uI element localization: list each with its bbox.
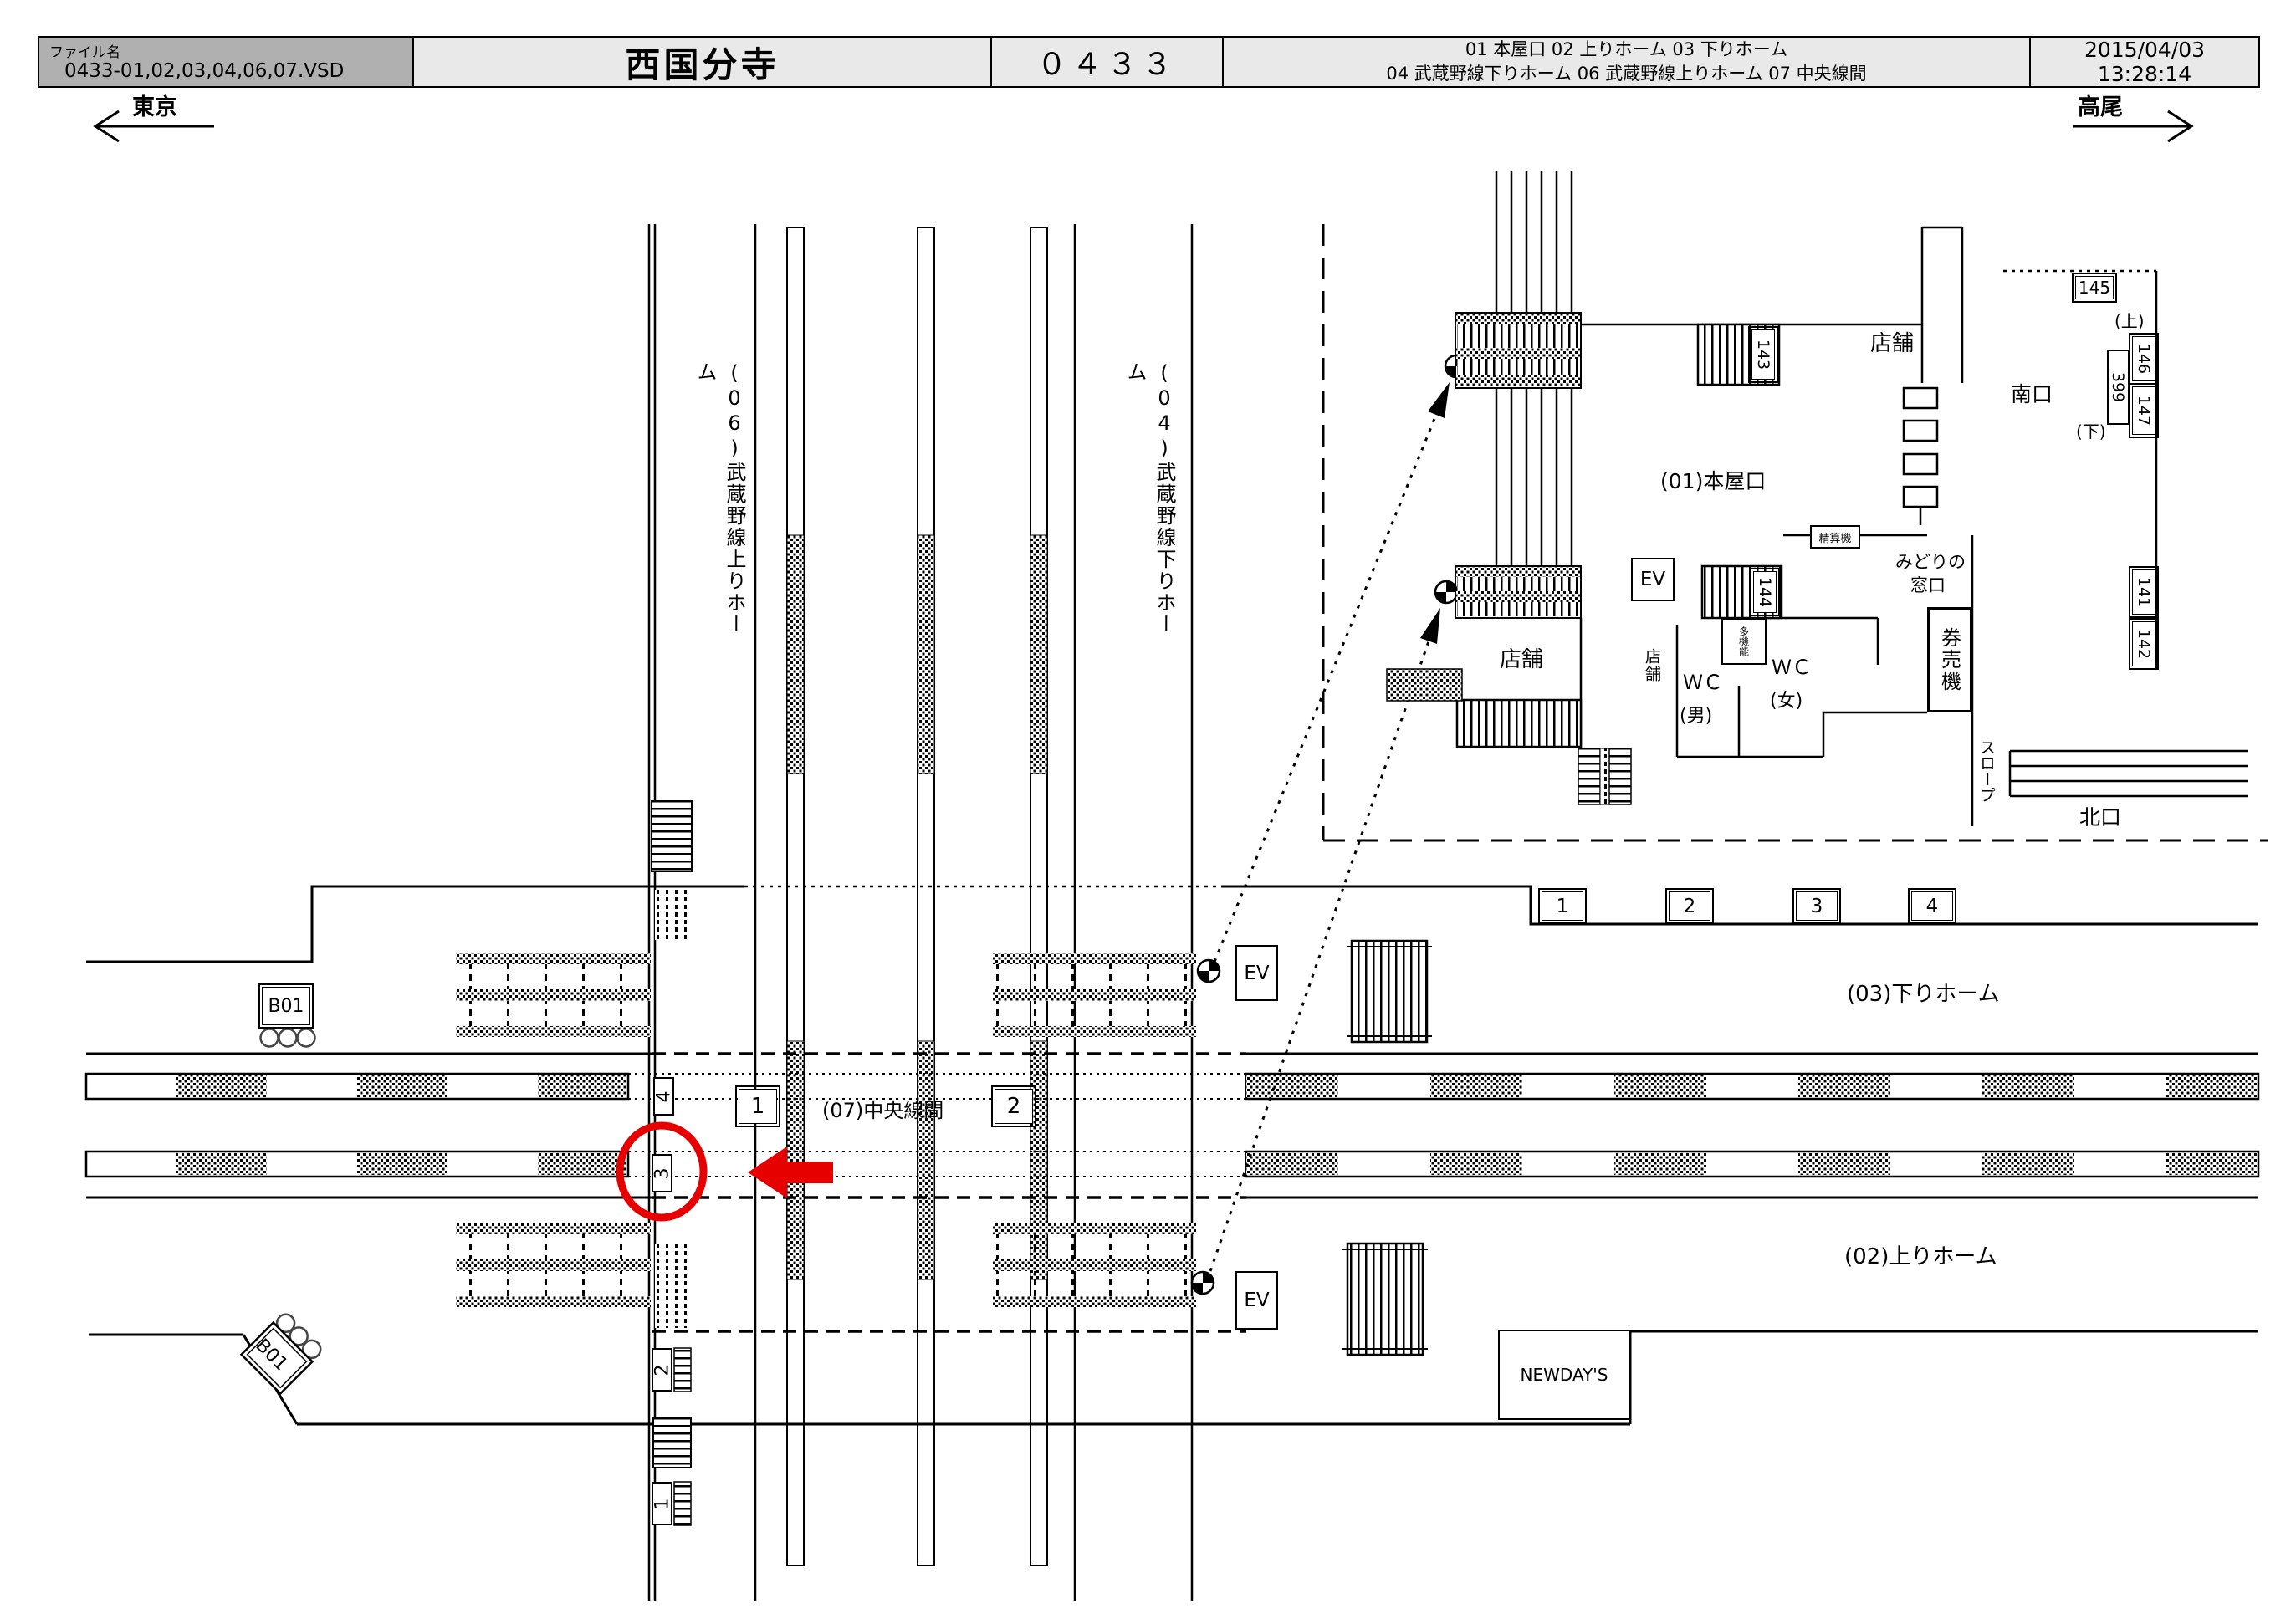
legend-line2: 04 武蔵野線下りホーム 06 武蔵野線上りホーム 07 中央線間: [1224, 62, 2030, 86]
position-399: 399: [2107, 350, 2130, 425]
door-number-4: 4: [1911, 891, 1953, 921]
diagram-linework: [0, 0, 2296, 1624]
b01-circles: [261, 1029, 315, 1047]
midori-madoguchi-line2: 窓口: [1910, 572, 1946, 597]
tokyo-direction-label: 東京: [132, 89, 177, 121]
slope-label: スロープ: [1976, 739, 1998, 823]
sheet-number-cell: ０４３３: [990, 36, 1224, 88]
position-147: 147: [2132, 386, 2155, 435]
midori-madoguchi-line1: みどりの: [1895, 549, 1966, 574]
track-number-1: 1: [739, 1089, 777, 1124]
ev-box-platform03: EV: [1235, 945, 1278, 1001]
newdays-shop: NEWDAY'S: [1498, 1330, 1630, 1420]
time-value: 13:28:14: [2098, 62, 2191, 86]
platform03-canopy: [456, 953, 1196, 1037]
position-145: 145: [2075, 276, 2114, 299]
sheet-number: ０４３３: [1036, 40, 1177, 84]
north-exit-label: 北口: [2079, 801, 2121, 831]
track-number-2: 2: [995, 1089, 1033, 1124]
station-diagram-page: ファイル名 0433-01,02,03,04,06,07.VSD 西国分寺 ０４…: [0, 0, 2296, 1624]
position-141: 141: [2132, 569, 2155, 615]
door-number-3: 3: [1796, 891, 1838, 921]
filename-cell: ファイル名 0433-01,02,03,04,06,07.VSD: [38, 36, 414, 88]
position-143: 143: [1751, 329, 1775, 380]
main-entrance-label: (01)本屋口: [1660, 465, 1766, 495]
stair-number-2: 2: [652, 1348, 672, 1392]
wc-female-label: ＷＣ: [1772, 651, 1812, 680]
filename-value: 0433-01,02,03,04,06,07.VSD: [64, 60, 344, 82]
door-number-2: 2: [1669, 891, 1710, 921]
b01-sign: B01: [262, 987, 310, 1025]
up-label: (上): [2114, 308, 2145, 332]
shop-label-room: 店舗: [1500, 642, 1543, 673]
south-exit-label: 南口: [2011, 378, 2053, 408]
position-144: 144: [1753, 571, 1777, 613]
platform03-label: (03)下りホーム: [1847, 977, 2000, 1008]
station-title: 西国分寺: [625, 37, 779, 88]
stair-number-4: 4: [653, 1077, 674, 1116]
musashino-tracks: [787, 227, 1047, 1565]
legend-cell: 01 本屋口 02 上りホーム 03 下りホーム 04 武蔵野線下りホーム 06…: [1222, 36, 2032, 88]
shop-label-small: 店舗: [1641, 648, 1664, 732]
track-B: [86, 1152, 2258, 1177]
datetime-cell: 2015/04/03 13:28:14: [2029, 36, 2260, 88]
track-A: [86, 1074, 2258, 1099]
connection-arrows: [1210, 382, 1450, 1271]
stair-number-3: 3: [652, 1154, 672, 1192]
wc-female-sub: (女): [1770, 686, 1803, 712]
position-142: 142: [2132, 621, 2155, 666]
platform04-label: (04)武蔵野線下りホーム: [1121, 361, 1179, 637]
ticket-machine-box: 券売機: [1927, 607, 1972, 712]
legend-line1: 01 本屋口 02 上りホーム 03 下りホーム: [1224, 38, 2030, 62]
platform03-stairs: [1347, 941, 1432, 1042]
inset-building: [1496, 171, 2248, 826]
multi-function-box: 多機能: [1721, 618, 1767, 665]
platform02-canopy: [456, 1223, 1196, 1307]
ev-box-platform02: EV: [1235, 1271, 1278, 1330]
ev-box-inset: EV: [1631, 558, 1675, 601]
stair-number-1: 1: [652, 1482, 672, 1525]
platform07-label: (07)中央線間: [822, 1094, 943, 1123]
filename-label: ファイル名: [49, 40, 120, 61]
door-number-1: 1: [1542, 891, 1583, 921]
title-cell: 西国分寺: [412, 36, 993, 88]
date-value: 2015/04/03: [2084, 38, 2205, 62]
platform02-stairs: [1342, 1244, 1428, 1355]
shop-label-upper: 店舗: [1870, 326, 1914, 357]
fare-adjust-box: 精算機: [1810, 525, 1860, 549]
position-146: 146: [2132, 336, 2155, 381]
down-label: (下): [2076, 418, 2106, 442]
platform06-label: (06)武蔵野線上りホーム: [691, 361, 749, 637]
wc-male-sub: (男): [1680, 701, 1712, 728]
wc-male-label: ＷＣ: [1683, 666, 1723, 695]
platform02-label: (02)上りホーム: [1844, 1239, 1997, 1270]
takao-direction-label: 高尾: [2078, 89, 2123, 121]
